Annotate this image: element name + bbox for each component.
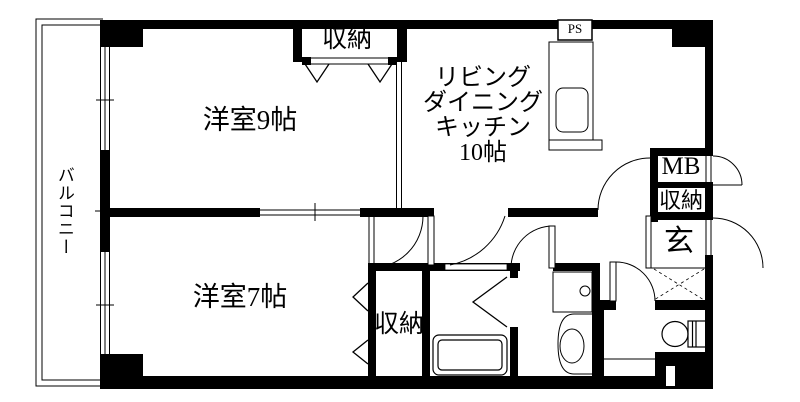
ldk-label: リビング ダイニング キッチン 10帖 [403, 66, 563, 166]
closet-top-label: 収納 [297, 27, 397, 53]
hall-door-arc [450, 216, 505, 265]
bath-wall-inset [445, 264, 507, 270]
closet-top-fold-left [305, 64, 329, 82]
entrance-tataki [654, 269, 704, 300]
toilet-tank [688, 321, 706, 347]
washing-machine-pan [553, 272, 592, 312]
bathtub [433, 335, 507, 375]
drain-circle [580, 286, 590, 296]
closet-top-fold-right [368, 64, 392, 82]
entrance-wall-notch [666, 366, 675, 386]
bedroom9-label: 洋室9帖 [150, 106, 350, 134]
bath-fold-door [473, 277, 507, 327]
closet-bottom-fold-lower [353, 340, 368, 364]
balcony-label: バルコニー [55, 156, 73, 266]
bedroom7-label: 洋室7帖 [140, 283, 340, 311]
closet-bottom-label: 収納 [349, 312, 449, 338]
closet-bottom-fold-upper [353, 283, 368, 311]
toilet-bowl [662, 322, 688, 347]
bedroom7-door-arc [371, 216, 423, 268]
door-leaves [428, 216, 616, 301]
pipe-space-label: PS [545, 22, 605, 36]
genkan-label: 玄 [629, 226, 729, 258]
entrance-closet-label: 収納 [631, 189, 731, 212]
washroom-door-arc [511, 226, 553, 268]
floorplan: 洋室9帖 洋室7帖 リビング ダイニング キッチン 10帖 収納 収納 収納 M… [0, 0, 800, 402]
toilet [662, 321, 706, 347]
meter-box-label: MB [631, 154, 731, 180]
vanity-sink [558, 314, 592, 374]
